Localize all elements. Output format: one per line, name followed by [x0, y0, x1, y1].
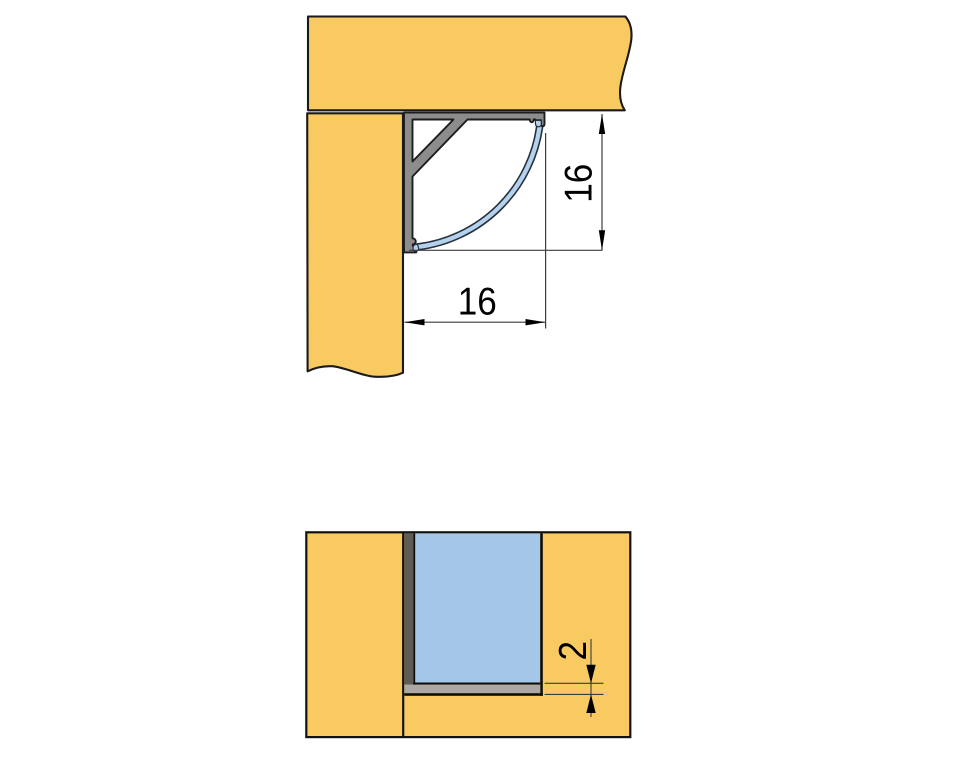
svg-text:16: 16 [458, 279, 497, 323]
svg-text:2: 2 [550, 641, 594, 661]
svg-text:16: 16 [556, 164, 600, 203]
